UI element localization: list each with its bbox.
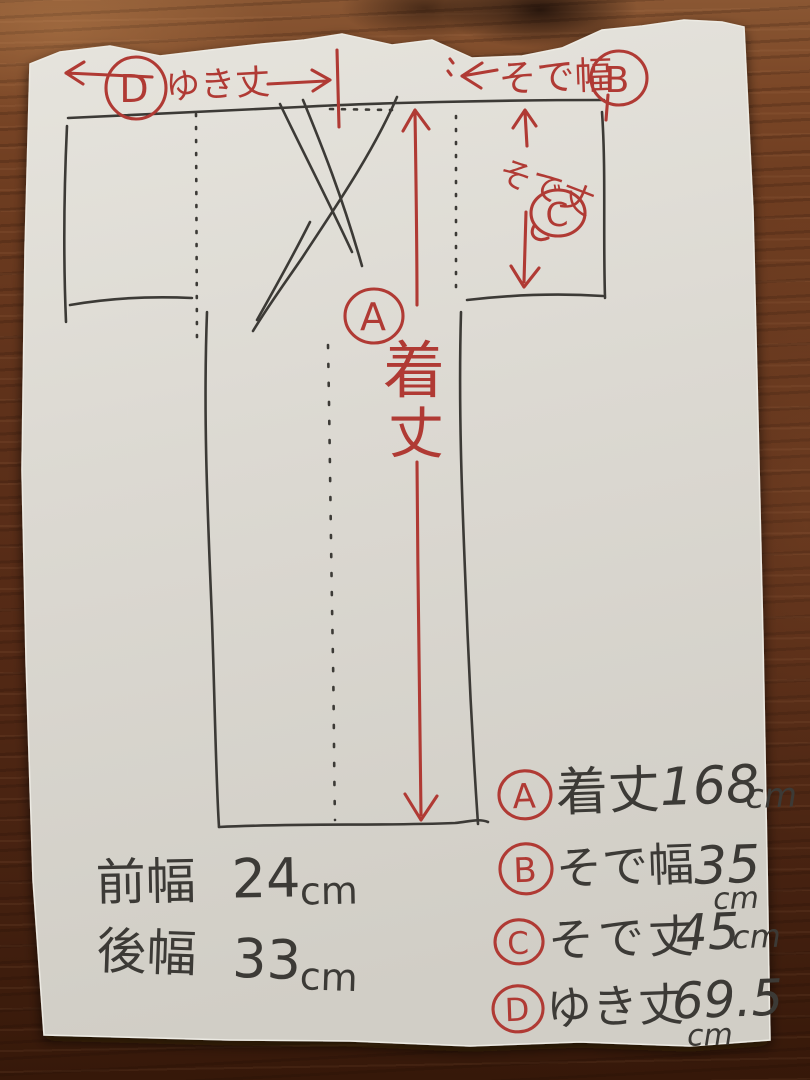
legend-label-D: ゆき丈 — [545, 977, 685, 1036]
photo-kimono-measurement-sketch: D ゆき丈 そで幅 B そで丈 C A — [0, 0, 810, 1080]
front-width-value: 24 — [231, 846, 301, 910]
front-width-label: 前幅 — [95, 852, 196, 912]
back-width-unit: cm — [299, 954, 358, 1000]
legend-letter-A: A — [512, 776, 537, 817]
sleeve-width-pointer — [606, 95, 608, 120]
legend-letter-C: C — [507, 925, 530, 962]
sketch-canvas: D ゆき丈 そで幅 B そで丈 C A — [0, 0, 810, 1080]
yuki-circle-letter: D — [119, 67, 148, 111]
yuki-end-tick — [337, 50, 339, 127]
yuki-label: ゆき丈 — [164, 63, 271, 108]
legend-letter-B: B — [513, 850, 538, 891]
legend-value-C: 45 — [675, 902, 741, 962]
garment-length-circle-letter: A — [360, 295, 386, 339]
back-width-label: 後幅 — [96, 922, 198, 983]
legend-label-B: そで幅 — [555, 837, 695, 896]
legend-unit-D: cm — [686, 1017, 733, 1054]
legend-label-A: 着丈 — [555, 760, 661, 824]
garment-length-char2: 丈 — [388, 402, 444, 467]
legend-unit-A: cm — [745, 775, 798, 817]
legend-unit-C: cm — [731, 917, 781, 957]
legend-letter-D: D — [504, 990, 530, 1029]
back-width-value: 33 — [231, 927, 302, 992]
sleeve-length-circle-letter: C — [545, 195, 568, 234]
front-width-unit: cm — [300, 868, 359, 913]
garment-length-char1: 着 — [383, 334, 445, 407]
